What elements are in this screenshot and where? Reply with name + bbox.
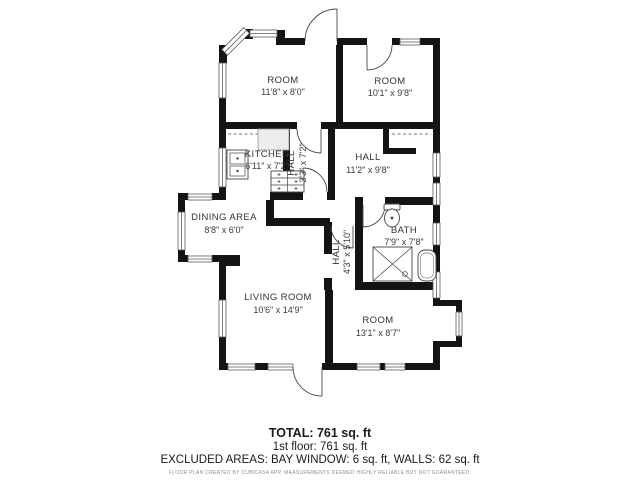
svg-text:11'2" x 9'8": 11'2" x 9'8" <box>346 165 390 175</box>
total-area-text: TOTAL: 761 sq. ft <box>0 426 640 440</box>
room-label-kitchen: KITCHEN 6'11" x 7'2" <box>245 149 290 171</box>
svg-text:ROOM: ROOM <box>362 315 393 326</box>
wardrobe <box>383 129 431 154</box>
room-label-bath: BATH 7'9" x 7'8" <box>384 225 423 247</box>
room-label-living: LIVING ROOM 10'6" x 14'9" <box>244 292 312 315</box>
room-label-dining: DINING AREA 8'8" x 6'0" <box>191 212 257 235</box>
svg-text:8'8" x 6'0": 8'8" x 6'0" <box>204 225 243 235</box>
svg-text:KITCHEN: KITCHEN <box>245 149 290 160</box>
back-door-arc <box>305 9 337 41</box>
svg-text:4'3" x 5'10": 4'3" x 5'10" <box>342 230 352 274</box>
svg-text:BATH: BATH <box>391 225 417 236</box>
svg-text:10'6" x 14'9": 10'6" x 14'9" <box>253 305 302 315</box>
svg-text:ROOM: ROOM <box>267 75 298 86</box>
room-label-top-left: ROOM 11'8" x 8'0" <box>261 75 305 97</box>
toilet <box>384 204 400 227</box>
bathtub <box>418 250 436 281</box>
svg-text:6'11" x 7'2": 6'11" x 7'2" <box>245 161 289 171</box>
first-floor-area-text: 1st floor: 761 sq. ft <box>0 441 640 453</box>
room-label-hall-main: HALL 11'2" x 9'8" <box>346 152 390 175</box>
svg-text:7'9" x 7'8": 7'9" x 7'8" <box>384 237 423 247</box>
svg-text:11'8" x 8'0": 11'8" x 8'0" <box>261 87 305 97</box>
svg-text:3'3" x 7'2": 3'3" x 7'2" <box>298 143 308 182</box>
kitchen-counter <box>258 129 289 150</box>
shower <box>373 247 412 281</box>
front-door-arc <box>293 367 322 396</box>
disclaimer-text: FLOOR PLAN CREATED BY CUBICASA APP. MEAS… <box>0 470 640 476</box>
svg-text:LIVING ROOM: LIVING ROOM <box>244 292 312 303</box>
window <box>222 28 250 56</box>
bath-door-arc <box>363 205 385 227</box>
floor-plan: ROOM 11'8" x 8'0" ROOM 10'1" x 9'8" KITC… <box>0 0 640 480</box>
svg-text:HALL: HALL <box>355 152 380 163</box>
room-label-bottom-right: ROOM 13'1" x 8'7" <box>356 315 400 338</box>
svg-text:DINING AREA: DINING AREA <box>191 212 257 223</box>
svg-text:10'1" x 9'8": 10'1" x 9'8" <box>368 88 412 98</box>
floor-plan-page: ROOM 11'8" x 8'0" ROOM 10'1" x 9'8" KITC… <box>0 0 640 480</box>
svg-text:ROOM: ROOM <box>374 76 405 87</box>
svg-text:13'1" x 8'7": 13'1" x 8'7" <box>356 328 400 338</box>
room-label-top-right: ROOM 10'1" x 9'8" <box>368 76 412 98</box>
svg-text:HALL: HALL <box>286 150 297 175</box>
room-label-hall-center: HALL 4'3" x 5'10" <box>331 230 352 274</box>
svg-text:HALL: HALL <box>331 239 342 264</box>
room2-door-arc <box>367 45 392 70</box>
excluded-areas-text: EXCLUDED AREAS: BAY WINDOW: 6 sq. ft, WA… <box>0 454 640 466</box>
